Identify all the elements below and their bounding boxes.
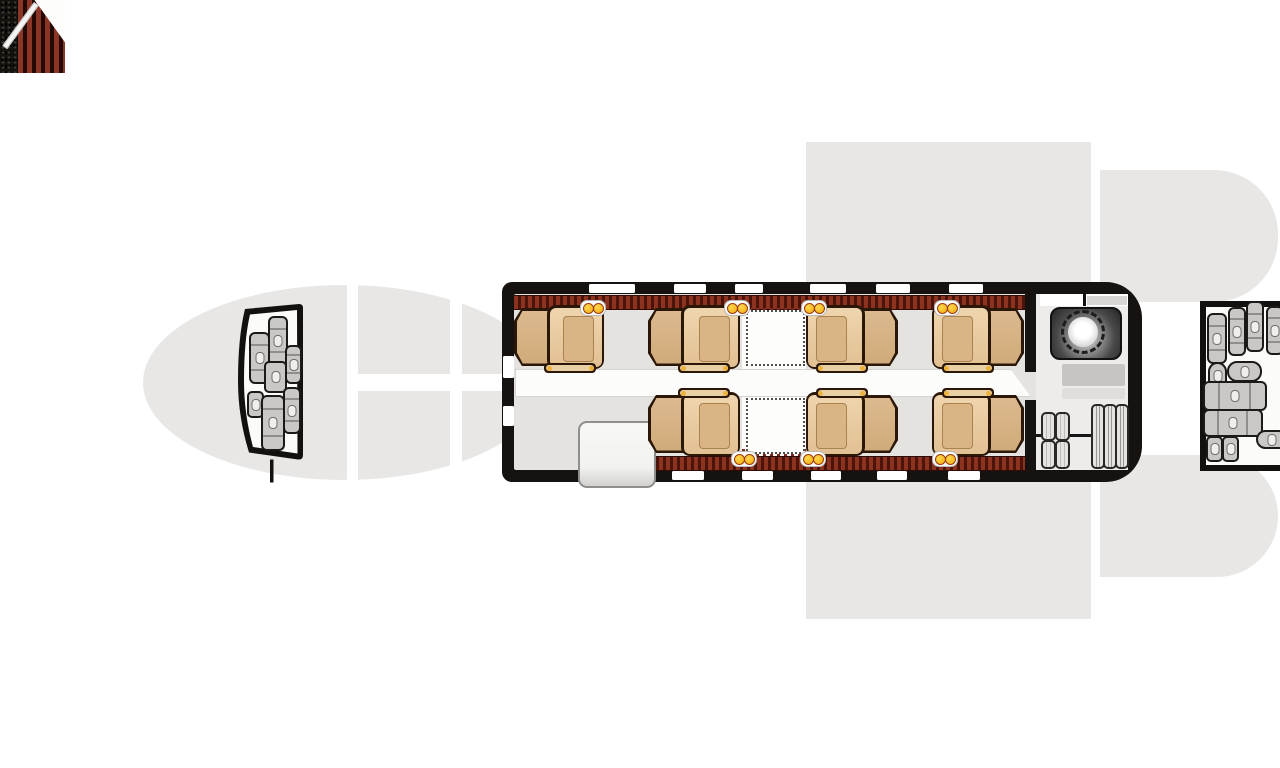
seat-4-pillow [943,316,974,362]
cupholder-icon [727,303,738,314]
seat-1-cushion [550,308,602,367]
cabin-window-top-4 [810,284,846,293]
cupholder-icon [804,303,815,314]
aft-luggage-suitcase-v-icon [1266,306,1280,355]
seat-3-footrest [816,363,868,373]
seat-5-footrest [678,388,730,398]
seat-7-footrest [942,388,994,398]
seat-5-latch-dot [681,391,686,396]
aft-luggage-duffel-h-icon [1227,361,1262,382]
seat-2-footrest [678,363,730,373]
folding-table-2 [746,398,805,454]
seat-6-footrest [816,388,868,398]
forward-bulkhead-slot-2 [503,406,514,426]
seat-3-cushion [809,308,863,367]
cabin-window-bottom-3 [811,471,841,480]
seat-7-cushion [935,395,989,454]
cabin-window-top-2 [674,284,706,293]
lavatory-door-tick [1083,293,1086,306]
seat-6-backrest [806,392,865,456]
wardrobe-hanger-icon-1 [1041,412,1056,441]
seat-5-backrest [681,392,740,456]
seat-3-latch-dot [819,366,824,371]
cupholder-icon [937,303,948,314]
cabin-window-bottom-2 [742,471,773,480]
seat-4-latch-dot [987,366,992,371]
cabin-window-bottom-5 [948,471,980,480]
nose-luggage-suitcase-v-icon [261,395,285,451]
cupholder-icon [813,454,824,465]
seat-4-cushion [935,308,989,367]
entry-door-area [0,0,65,73]
seat-2-latch-dot [681,366,686,371]
seat-7 [932,392,1024,456]
sideledge-bottom [652,456,1028,471]
cabin-window-top-3 [735,284,763,293]
wardrobe-hanger-icon-2 [1055,412,1070,441]
cupholder-icon [737,303,748,314]
aft-luggage-suitcase-h-icon [1203,381,1267,411]
vanity-counter [1062,364,1125,386]
cabin-window-bottom-1 [672,471,704,480]
tail-silhouette-upper [1100,170,1278,302]
cupholder-pair-top-3 [801,300,827,316]
cupholder-icon [803,454,814,465]
lavatory-wall-shade [1087,296,1127,305]
seat-4-latch-dot [945,366,950,371]
seat-7-pillow [943,403,974,449]
cupholder-pair-bottom-2 [800,451,826,467]
cupholder-pair-top-1 [580,300,606,316]
aircraft-cabin-floorplan [0,0,1280,768]
cupholder-icon [945,454,956,465]
aft-luggage-suitcase-v-icon [1228,307,1246,356]
seat-2-latch-dot [723,366,728,371]
aft-luggage-suitcase-v-icon [1207,313,1227,364]
seat-7-latch-dot [987,391,992,396]
cabin-window-top-6 [949,284,983,293]
cupholder-pair-bottom-3 [932,451,958,467]
seat-4-footrest [942,363,994,373]
nose-luggage-case-v-icon [285,345,302,384]
forward-cabinet [578,421,656,488]
wardrobe-hanger-icon-3 [1041,440,1056,469]
seat-5-latch-dot [723,391,728,396]
cupholder-icon [935,454,946,465]
seat-1-footrest [544,363,596,373]
forward-bulkhead-slot-1 [503,356,514,378]
seat-5-cushion [684,395,738,454]
cupholder-pair-top-4 [934,300,960,316]
seat-1-pillow [563,316,594,362]
seat-6-pillow [817,403,848,449]
folding-table-1 [746,310,805,366]
wardrobe-hanger-icon-4 [1055,440,1070,469]
toilet-bowl-icon [1068,317,1098,347]
seat-5 [648,392,740,456]
cupholder-icon [744,454,755,465]
seat-6-latch-dot [819,391,824,396]
cabin-window-top-1 [589,284,635,293]
aft-luggage-suitcase-h-icon [1203,409,1263,437]
seat-2-pillow [699,316,730,362]
aft-luggage-duffel-h-icon [1256,430,1280,449]
seat-5-pillow [699,403,730,449]
cupholder-pair-top-2 [724,300,750,316]
fuselage-section-gap-horizontal [347,374,503,391]
aft-luggage-bag-small-icon [1222,436,1239,462]
cupholder-icon [593,303,604,314]
vanity-shelf [1062,388,1125,399]
seat-6-latch-dot [861,391,866,396]
seat-7-backrest [932,392,991,456]
cupholder-icon [814,303,825,314]
aft-partition-1 [1025,294,1036,372]
seat-2-cushion [684,308,738,367]
cupholder-icon [583,303,594,314]
nose-luggage-case-v-icon [283,387,301,434]
cupholder-icon [947,303,958,314]
nose-gear-door-tick [270,460,274,483]
seat-1-latch-dot [547,366,552,371]
cabin-window-bottom-4 [877,471,907,480]
wardrobe-rod-icon-3 [1115,404,1129,469]
seat-6-cushion [809,395,863,454]
cupholder-pair-bottom-1 [731,451,757,467]
aft-luggage-suitcase-v-icon [1246,301,1264,352]
seat-3-latch-dot [861,366,866,371]
seat-7-latch-dot [945,391,950,396]
seat-3-pillow [817,316,848,362]
cabin-window-top-5 [876,284,910,293]
cupholder-icon [734,454,745,465]
seat-1-latch-dot [589,366,594,371]
aft-luggage-bag-small-icon [1206,436,1223,462]
seat-6 [806,392,898,456]
